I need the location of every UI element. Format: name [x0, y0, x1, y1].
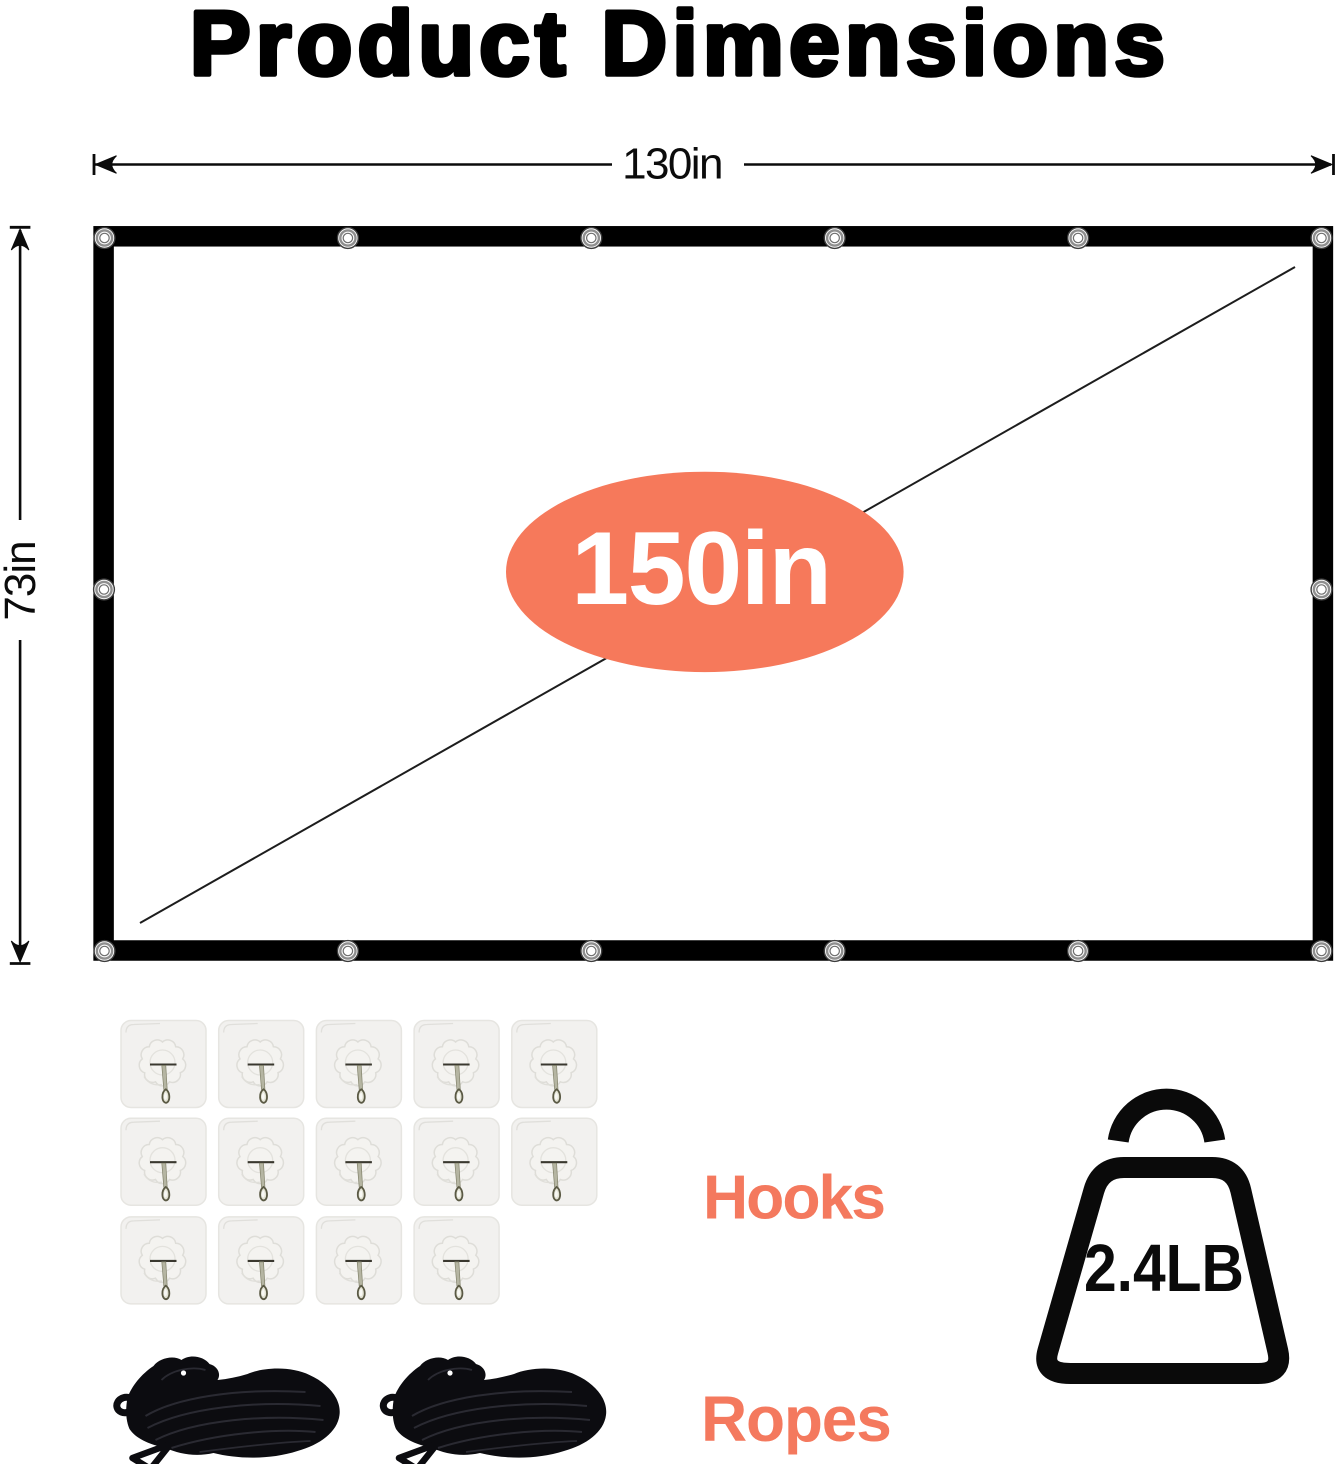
- svg-text:130in: 130in: [622, 140, 722, 189]
- svg-text:150in: 150in: [571, 511, 830, 627]
- svg-text:Product Dimensions: Product Dimensions: [190, 0, 1170, 95]
- svg-text:73in: 73in: [0, 541, 45, 620]
- svg-text:2.4LB: 2.4LB: [1084, 1231, 1244, 1305]
- svg-text:Ropes: Ropes: [701, 1383, 891, 1455]
- svg-text:Hooks: Hooks: [703, 1163, 884, 1233]
